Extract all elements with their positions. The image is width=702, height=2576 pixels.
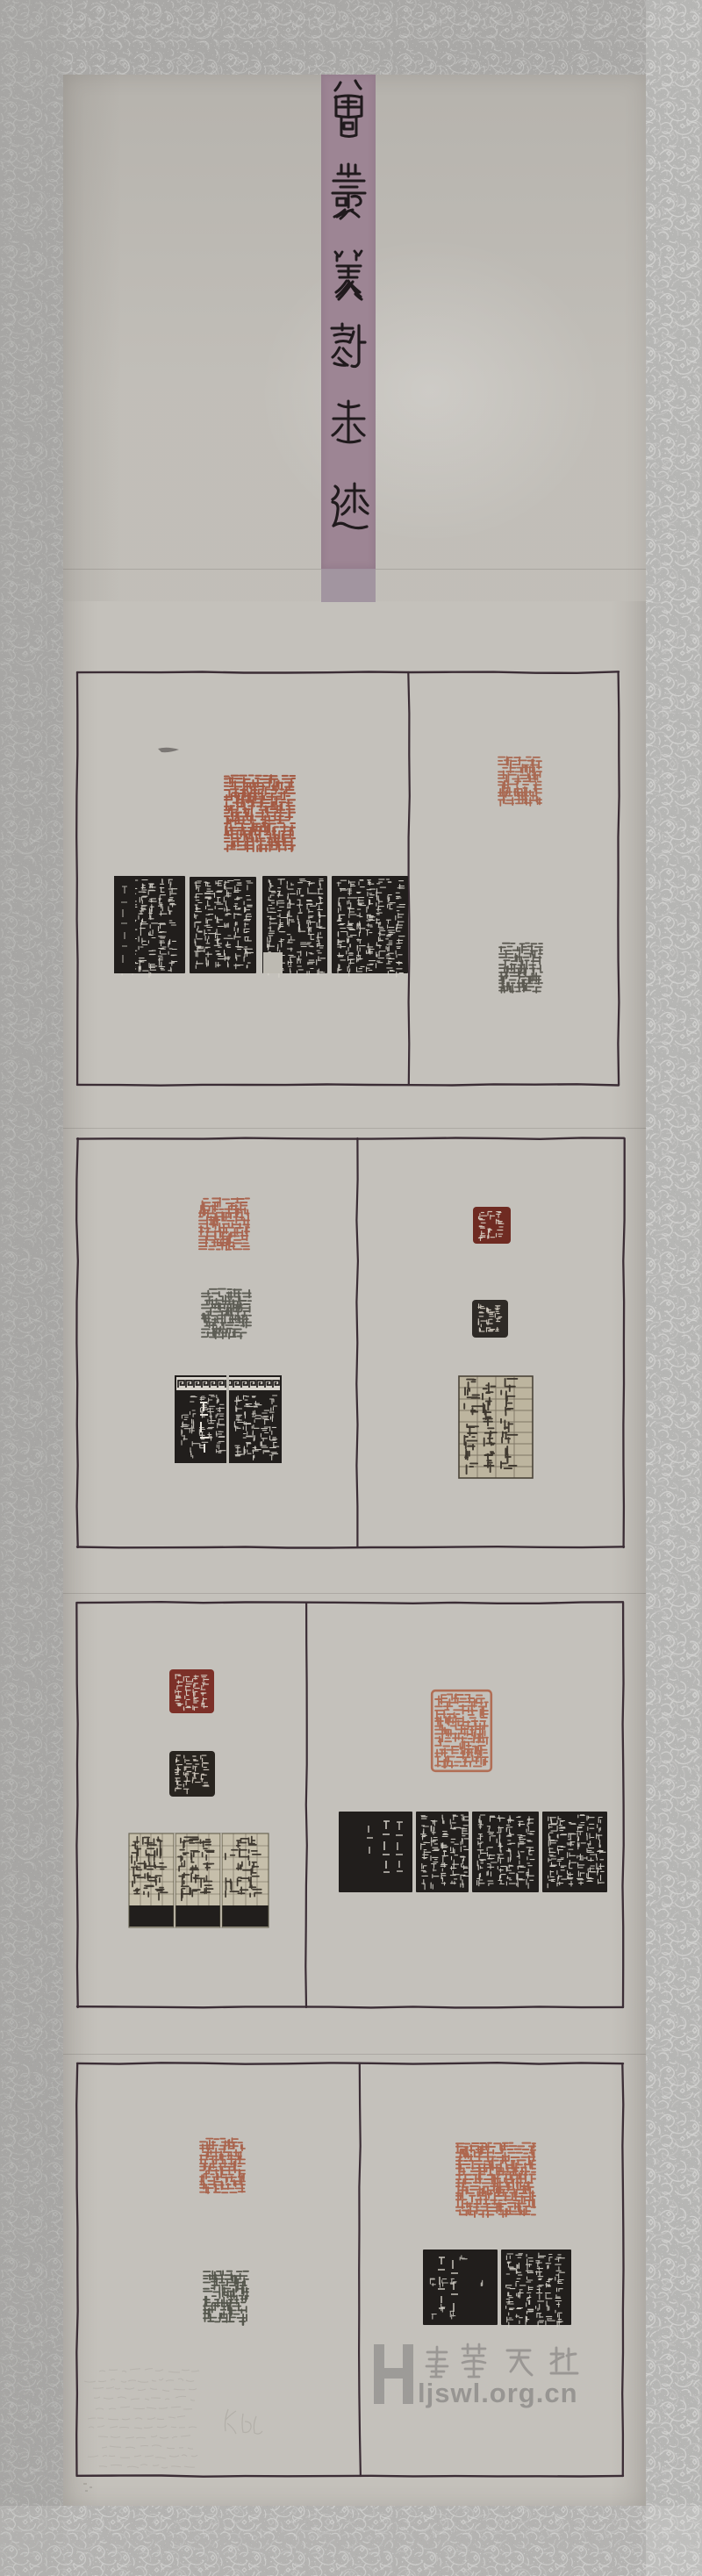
- svg-text:ljswl.org.cn: ljswl.org.cn: [418, 2378, 578, 2408]
